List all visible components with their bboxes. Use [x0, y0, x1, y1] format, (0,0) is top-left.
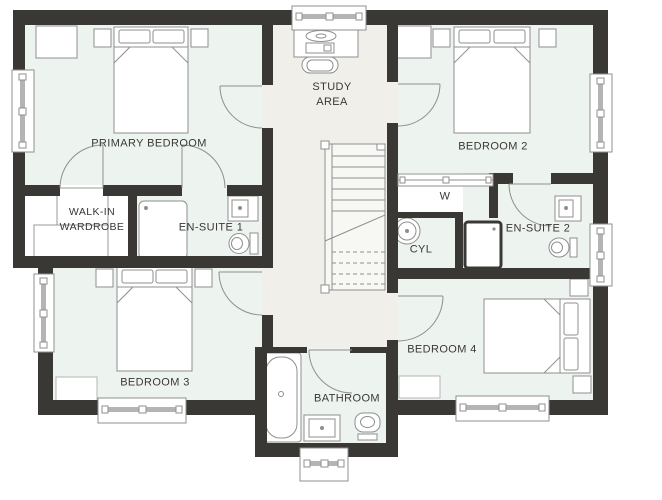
- en-suite-2-toilet: [549, 238, 577, 257]
- bedroom-3-bedside-table-right: [195, 269, 212, 287]
- bedroom-2-window: [590, 74, 612, 152]
- label-walk-in-wardrobe: WALK-IN WARDROBE: [60, 205, 125, 235]
- floor-plan-drawing: [0, 0, 662, 500]
- study-desk: [294, 27, 358, 57]
- label-wardrobe: W: [440, 190, 451, 205]
- bedroom-4-bedside-table-bottom: [573, 376, 591, 393]
- label-study-area: STUDY AREA: [312, 80, 351, 110]
- closet-door-front: [398, 174, 493, 186]
- bedroom-2-bedside-table-right: [539, 29, 556, 47]
- en-suite-2-window: [590, 224, 612, 286]
- label-en-suite-1: EN-SUITE 1: [179, 221, 244, 236]
- primary-corner-unit: [36, 26, 77, 58]
- label-walk-in-wardrobe-line1: WALK-IN: [60, 205, 125, 220]
- label-bathroom: BATHROOM: [314, 392, 380, 407]
- bedroom-2-corner-unit: [397, 26, 431, 58]
- staircase: [321, 141, 385, 293]
- bathroom-window: [300, 448, 348, 481]
- bathtub: [262, 353, 301, 442]
- bedroom-3-bottom-window: [98, 398, 186, 423]
- bedroom-4-window: [456, 396, 549, 421]
- bathroom-sink: [304, 415, 340, 441]
- floor-plan: PRIMARY BEDROOM WALK-IN WARDROBE EN-SUIT…: [0, 0, 662, 500]
- bedroom-4-bedside-table-top: [570, 279, 588, 296]
- bedroom-3-corner-recess: [56, 377, 97, 401]
- label-walk-in-wardrobe-line2: WARDROBE: [60, 220, 125, 235]
- bedroom-2-bedside-table-left: [433, 29, 450, 47]
- bedroom-3-bed: [117, 267, 192, 371]
- label-study-area-line1: STUDY: [312, 80, 351, 95]
- en-suite-2-shower: [465, 222, 501, 268]
- bedroom-2-bed: [454, 27, 530, 133]
- label-bedroom-2: BEDROOM 2: [458, 140, 528, 155]
- label-primary-bedroom: PRIMARY BEDROOM: [91, 137, 207, 152]
- label-cylinder: CYL: [410, 243, 433, 258]
- en-suite-1-sink: [228, 196, 258, 221]
- study-chair: [302, 57, 338, 73]
- primary-bedroom-window: [12, 70, 34, 152]
- study-window: [292, 6, 366, 30]
- primary-bedroom-bed: [114, 27, 188, 133]
- label-bedroom-3: BEDROOM 3: [120, 376, 190, 391]
- bathroom-toilet: [355, 413, 380, 440]
- en-suite-1-toilet: [229, 233, 258, 254]
- bedroom-4-corner-recess: [399, 376, 440, 398]
- label-study-area-line2: AREA: [312, 95, 351, 110]
- primary-bedside-table-right: [191, 29, 208, 47]
- en-suite-2-sink: [555, 196, 581, 221]
- primary-bedside-table-left: [94, 29, 111, 47]
- bedroom-3-bedside-table-left: [96, 269, 113, 287]
- bedroom-3-side-window: [34, 274, 54, 352]
- label-en-suite-2: EN-SUITE 2: [506, 222, 571, 237]
- bedroom-4-bed: [484, 299, 590, 373]
- label-bedroom-4: BEDROOM 4: [407, 343, 477, 358]
